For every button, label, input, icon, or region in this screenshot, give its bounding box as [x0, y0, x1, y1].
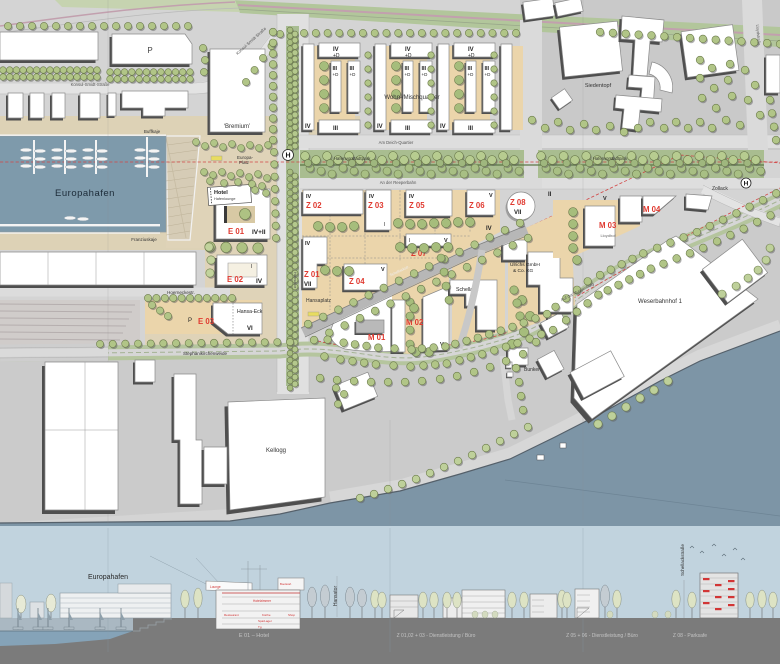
svg-text:IV: IV	[305, 124, 311, 130]
svg-text:Zollack: Zollack	[712, 186, 728, 192]
svg-text:Weserbahnhof 1: Weserbahnhof 1	[638, 299, 683, 305]
svg-text:Restaurant: Restaurant	[224, 613, 239, 617]
svg-text:Z 08 - Parksafe: Z 08 - Parksafe	[673, 633, 707, 639]
svg-text:+D: +D	[333, 53, 340, 59]
svg-text:VII: VII	[514, 210, 522, 216]
svg-text:Lounge: Lounge	[210, 585, 221, 589]
svg-text:+D: +D	[350, 72, 357, 77]
svg-text:Z 05: Z 05	[409, 201, 425, 210]
svg-text:E 01 – Hotel: E 01 – Hotel	[239, 633, 269, 639]
svg-text:H: H	[285, 153, 290, 160]
svg-text:III: III	[333, 126, 338, 132]
svg-text:+D: +D	[333, 72, 340, 77]
svg-text:P: P	[147, 46, 152, 55]
svg-text:V: V	[603, 196, 607, 202]
svg-text:III: III	[468, 126, 473, 132]
svg-text:P: P	[188, 318, 192, 324]
svg-text:VI: VI	[247, 326, 253, 332]
svg-text:+D: +D	[468, 72, 475, 77]
svg-text:Konsul-Smidt-Straße: Konsul-Smidt-Straße	[71, 82, 111, 87]
svg-text:IV: IV	[256, 278, 263, 285]
svg-text:IV: IV	[305, 241, 311, 247]
svg-text:IV: IV	[306, 194, 312, 200]
svg-text:+D: +D	[422, 72, 429, 77]
svg-text:IV+II: IV+II	[252, 229, 266, 236]
svg-text:Z 02: Z 02	[306, 201, 322, 210]
svg-text:An der Reeperbahn: An der Reeperbahn	[380, 180, 417, 185]
svg-text:E 03: E 03	[198, 317, 215, 326]
svg-text:Europahafen: Europahafen	[88, 574, 128, 581]
svg-text:E 02: E 02	[227, 275, 244, 284]
svg-text:Hoerneckestr.: Hoerneckestr.	[167, 290, 195, 295]
svg-text:+D: +D	[405, 72, 412, 77]
svg-text:Z 05 + 06 - Dienstleistung /: Z 05 + 06 - Dienstleistung / Büro	[566, 633, 638, 639]
svg-text:Tg: Tg	[258, 625, 262, 629]
svg-text:Am Deich-Quartier: Am Deich-Quartier	[379, 140, 414, 145]
svg-text:Z 03: Z 03	[368, 201, 384, 210]
svg-text:I: I	[384, 222, 385, 228]
svg-text:Hotelzimmer: Hotelzimmer	[253, 599, 272, 603]
svg-text:Z 01: Z 01	[304, 270, 320, 279]
svg-text:Franziuskaje: Franziuskaje	[131, 237, 157, 242]
svg-text:H: H	[744, 181, 749, 188]
svg-text:Z 04: Z 04	[349, 277, 365, 286]
svg-text:+D: +D	[485, 72, 492, 77]
svg-text:M 04: M 04	[643, 205, 661, 214]
svg-text:Hansaplatz: Hansaplatz	[306, 298, 332, 304]
svg-text:IV: IV	[440, 124, 446, 130]
svg-text:Z 08: Z 08	[510, 198, 526, 207]
svg-text:I: I	[251, 264, 252, 270]
svg-text:M 03: M 03	[599, 221, 617, 230]
svg-text:Kellogg: Kellogg	[266, 448, 286, 454]
svg-text:IV: IV	[486, 226, 492, 232]
svg-text:Shop: Shop	[288, 613, 295, 617]
svg-text:Z 01,02 + 03 - Dienstleistun: Z 01,02 + 03 - Dienstleistung / Büro	[397, 633, 476, 639]
svg-text:Hansator: Hansator	[293, 272, 298, 289]
svg-text:Hafenvorstadtpark: Hafenvorstadtpark	[334, 156, 372, 161]
svg-text:Lloydhof: Lloydhof	[600, 233, 616, 238]
svg-text:IV: IV	[409, 194, 415, 200]
svg-text:& Co. KG: & Co. KG	[513, 268, 534, 274]
svg-text:Hafenlounge: Hafenlounge	[214, 197, 236, 201]
svg-text:Bootscaf.: Bootscaf.	[280, 582, 292, 586]
svg-text:Ulrichs GmbH: Ulrichs GmbH	[510, 262, 540, 268]
svg-text:Platz: Platz	[239, 160, 250, 165]
svg-text:Spa/Lager: Spa/Lager	[258, 619, 272, 623]
svg-text:VII: VII	[304, 282, 312, 288]
svg-text:Hansa-Eck: Hansa-Eck	[237, 309, 263, 315]
svg-text:E 01: E 01	[228, 227, 245, 236]
svg-text:Z 06: Z 06	[469, 201, 485, 210]
svg-text:Europahafen: Europahafen	[55, 188, 115, 199]
svg-text:Buffkaje: Buffkaje	[144, 129, 161, 134]
svg-text:V: V	[489, 193, 493, 199]
svg-text:I: I	[409, 238, 410, 244]
svg-text:Hansator: Hansator	[333, 586, 339, 607]
svg-text:V: V	[381, 267, 385, 273]
svg-text:Hafenvorstadtpark: Hafenvorstadtpark	[593, 156, 628, 161]
svg-text:Siedentopf: Siedentopf	[585, 83, 612, 89]
svg-text:Stephanikirchenweide: Stephanikirchenweide	[183, 351, 228, 356]
svg-text:Bunker: Bunker	[524, 367, 540, 373]
svg-text:‘Bremium’: ‘Bremium’	[224, 124, 251, 130]
svg-text:II: II	[548, 192, 552, 198]
svg-text:Hotel: Hotel	[214, 190, 228, 196]
svg-text:+D: +D	[468, 53, 475, 59]
svg-text:III: III	[405, 126, 410, 132]
svg-text:Küche: Küche	[262, 613, 271, 617]
svg-text:IV: IV	[377, 124, 383, 130]
svg-text:Schellackstraße: Schellackstraße	[680, 543, 685, 576]
svg-text:IV: IV	[369, 194, 375, 200]
svg-text:+D: +D	[405, 53, 412, 59]
svg-text:M 01: M 01	[368, 333, 386, 342]
